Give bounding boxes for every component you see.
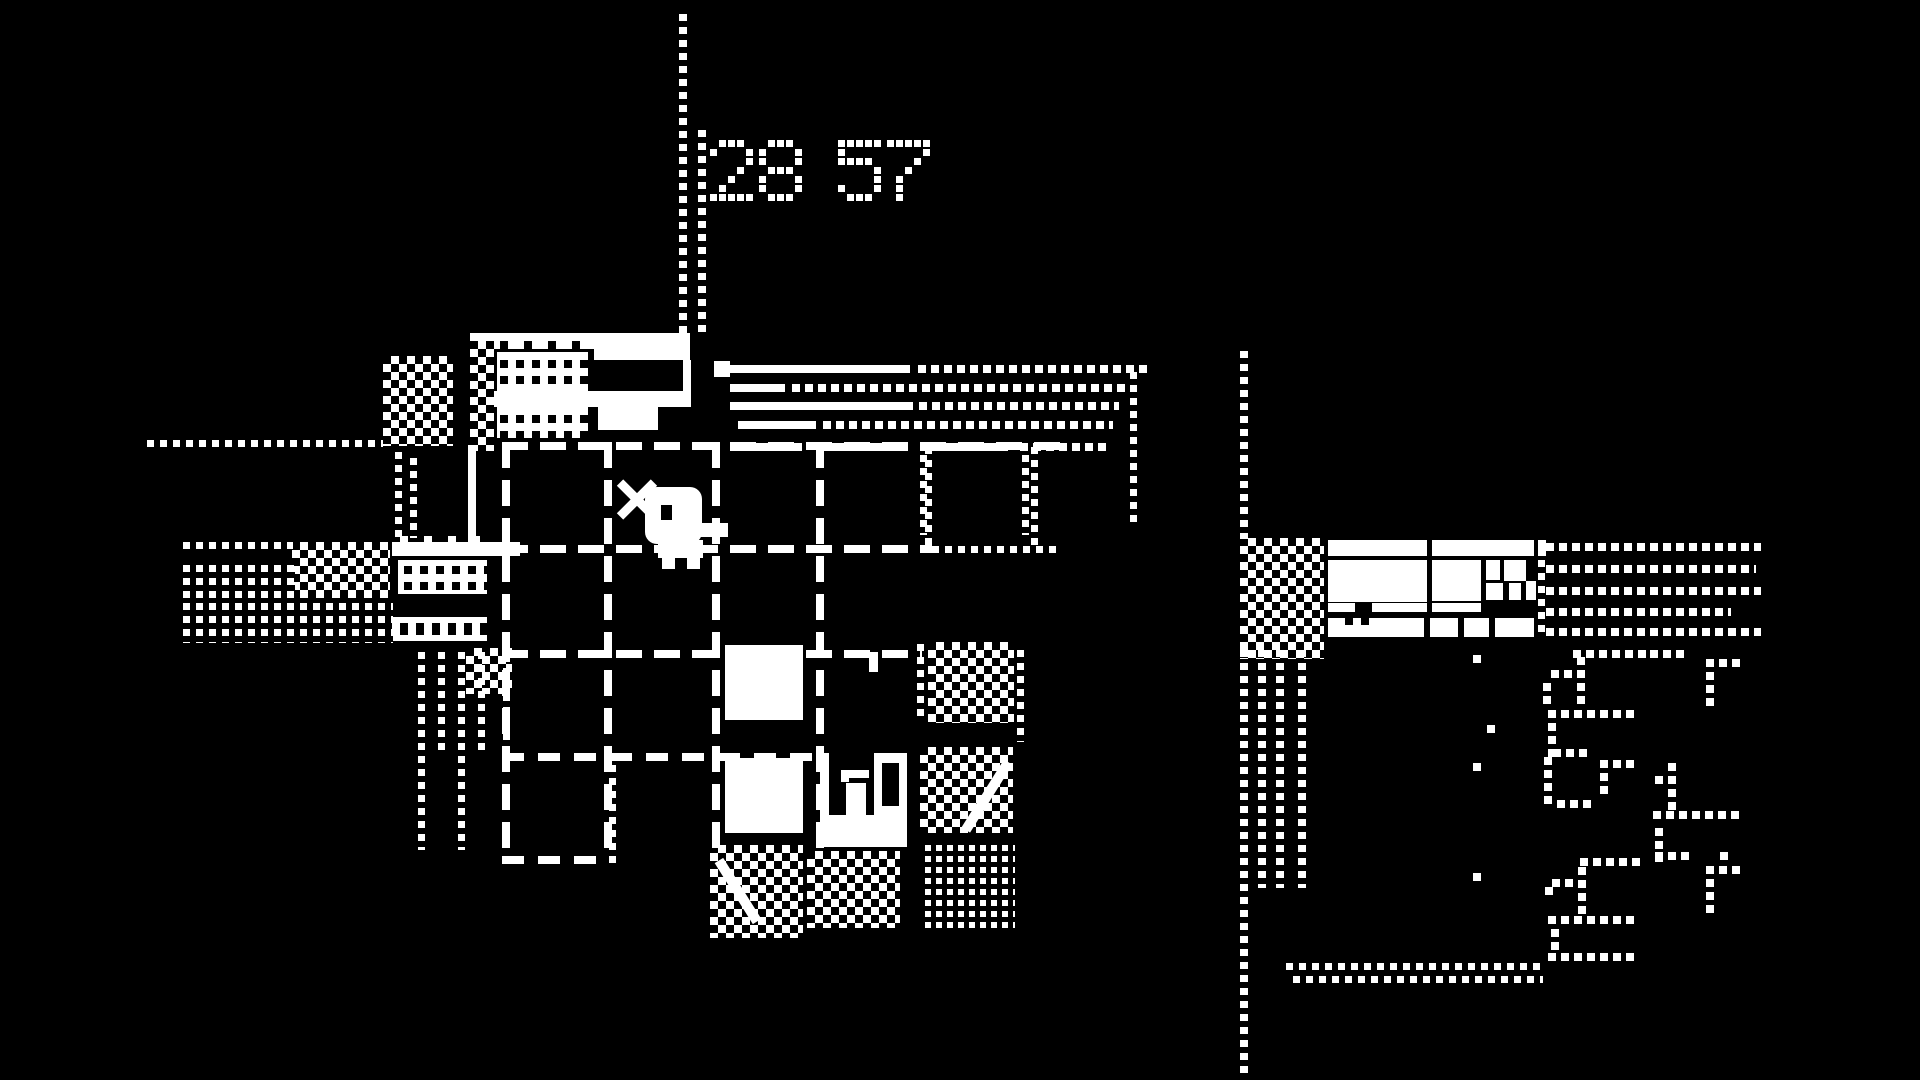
timer-digit-8 bbox=[786, 140, 793, 147]
timer-digit-8 bbox=[786, 194, 793, 201]
timer-digit-8 bbox=[768, 140, 775, 147]
timer-digit-8 bbox=[795, 149, 802, 156]
timer-digit-2 bbox=[728, 176, 735, 183]
timer-digit-7 bbox=[896, 176, 903, 183]
timer-digit-8 bbox=[786, 167, 793, 174]
timer-digit-5 bbox=[865, 158, 872, 165]
timer-digit-5 bbox=[838, 185, 845, 192]
game-viewport[interactable] bbox=[0, 0, 1920, 1080]
timer-digit-2 bbox=[737, 167, 744, 174]
timer-digit-8 bbox=[768, 194, 775, 201]
timer-digit-7 bbox=[923, 140, 930, 147]
timer-digit-5 bbox=[847, 194, 854, 201]
timer-digit-5 bbox=[856, 140, 863, 147]
hud-timer bbox=[0, 0, 1920, 1080]
timer-digit-7 bbox=[896, 185, 903, 192]
timer-digit-8 bbox=[759, 185, 766, 192]
timer-digit-7 bbox=[896, 194, 903, 201]
timer-digit-5 bbox=[874, 185, 881, 192]
timer-digit-8 bbox=[768, 167, 775, 174]
timer-digit-2 bbox=[746, 194, 753, 201]
timer-digit-2 bbox=[719, 140, 726, 147]
timer-digit-2 bbox=[710, 194, 717, 201]
timer-digit-7 bbox=[923, 149, 930, 156]
timer-digit-7 bbox=[914, 140, 921, 147]
timer-digit-5 bbox=[838, 140, 845, 147]
timer-digit-5 bbox=[865, 194, 872, 201]
timer-digit-7 bbox=[914, 158, 921, 165]
timer-digit-5 bbox=[847, 140, 854, 147]
timer-digit-2 bbox=[737, 194, 744, 201]
timer-digit-2 bbox=[737, 140, 744, 147]
timer-digit-7 bbox=[905, 140, 912, 147]
timer-digit-7 bbox=[905, 167, 912, 174]
timer-digit-5 bbox=[865, 140, 872, 147]
timer-digit-2 bbox=[728, 140, 735, 147]
timer-digit-5 bbox=[856, 158, 863, 165]
timer-digit-5 bbox=[838, 158, 845, 165]
timer-digit-2 bbox=[746, 149, 753, 156]
timer-digit-8 bbox=[777, 140, 784, 147]
timer-digit-5 bbox=[838, 149, 845, 156]
timer-digit-8 bbox=[759, 149, 766, 156]
timer-digit-8 bbox=[759, 158, 766, 165]
timer-digit-8 bbox=[777, 167, 784, 174]
timer-digit-2 bbox=[719, 194, 726, 201]
timer-digit-7 bbox=[887, 140, 894, 147]
timer-digit-2 bbox=[746, 158, 753, 165]
timer-digit-2 bbox=[710, 149, 717, 156]
timer-digit-5 bbox=[847, 158, 854, 165]
timer-digit-7 bbox=[896, 140, 903, 147]
timer-digit-8 bbox=[795, 176, 802, 183]
timer-digit-5 bbox=[874, 176, 881, 183]
timer-digit-8 bbox=[759, 176, 766, 183]
timer-digit-2 bbox=[719, 185, 726, 192]
timer-digit-5 bbox=[874, 140, 881, 147]
timer-digit-8 bbox=[795, 158, 802, 165]
timer-digit-8 bbox=[777, 194, 784, 201]
timer-digit-2 bbox=[728, 194, 735, 201]
timer-digit-5 bbox=[874, 167, 881, 174]
timer-digit-5 bbox=[856, 194, 863, 201]
timer-digit-8 bbox=[795, 185, 802, 192]
game-window bbox=[0, 0, 1920, 1080]
